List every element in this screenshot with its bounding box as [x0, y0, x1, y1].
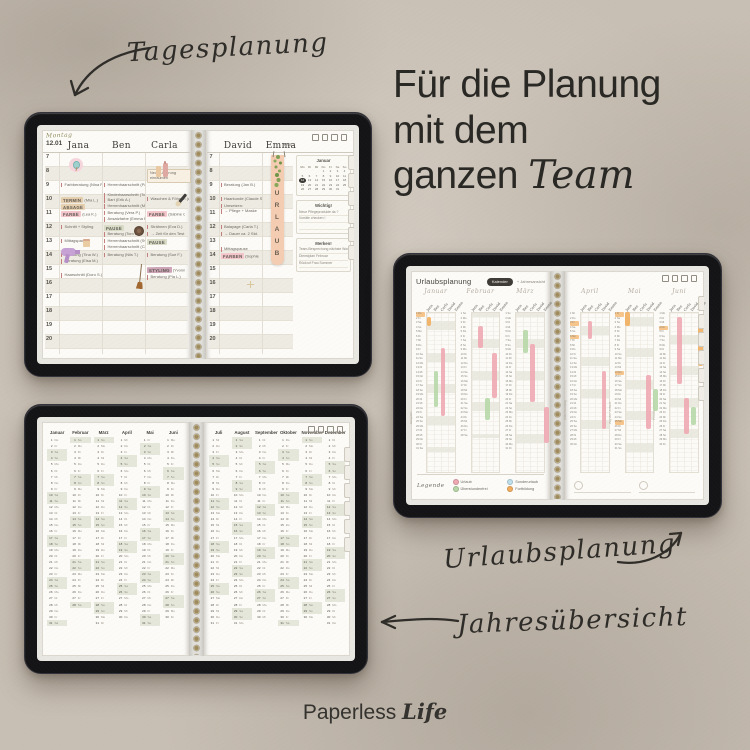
- page-tab[interactable]: [348, 173, 354, 188]
- page-tabs: [344, 447, 350, 552]
- vacation-bar: [523, 330, 528, 353]
- year-page-left: Januar1Do2Fr3Sa4So5Mo6Di7Mi8Do9Fr10Sa11S…: [42, 422, 189, 656]
- vacation-bar: [434, 371, 439, 407]
- tablet-year-overview: Januar1Do2Fr3Sa4So5Mo6Di7Mi8Do9Fr10Sa11S…: [24, 404, 368, 674]
- legend-color-dot: [453, 486, 459, 492]
- staff-name: Ben: [100, 141, 143, 151]
- planner-entry: Beratung (Vera P.): [104, 211, 146, 216]
- calendar-week-label: KW 2: [284, 142, 295, 147]
- year-overview-screen: Januar1Do2Fr3Sa4So5Mo6Di7Mi8Do9Fr10Sa11S…: [37, 417, 355, 661]
- vacation-bar: [691, 407, 696, 425]
- marketing-image: Tagesplanung Für die Planung mit dem gan…: [0, 0, 750, 750]
- vacation-bar: [485, 398, 490, 421]
- time-row: 18: [209, 307, 294, 321]
- vacation-planner-screen: Urlaubsplanung Kalender + Jahresansicht …: [406, 266, 709, 505]
- vacation-bar: [684, 398, 689, 434]
- planner-entry: Mittagspause: [61, 239, 103, 244]
- calendar-day: 31: [334, 187, 341, 192]
- year-day-row: 31Fr: [209, 620, 229, 626]
- year-day-row: 31Sa: [47, 620, 67, 626]
- planner-entry: FARBEN (Sophie T.): [221, 253, 259, 259]
- vacation-bar: [653, 389, 658, 412]
- vacation-bar: [677, 317, 682, 385]
- jahresansicht-link[interactable]: + Jahresansicht: [517, 279, 545, 284]
- time-row: 15: [209, 265, 294, 279]
- page-tab[interactable]: [344, 519, 350, 534]
- vacation-bar: [492, 353, 497, 398]
- planner-entry: Herrenhaarschnitt (Carl N.): [104, 245, 146, 250]
- vacation-bar: [478, 326, 483, 349]
- page-tab[interactable]: [344, 447, 350, 462]
- page-tab[interactable]: [344, 501, 350, 516]
- planner-entry: Herrenhaarschnitt (Max C.): [104, 204, 146, 209]
- vacation-month: FebruarJanaBenCarlaDavidEmma1 So 2 Mo 3 …: [461, 288, 501, 473]
- legend-color-dot: [507, 479, 513, 485]
- grid-icon[interactable]: [327, 426, 334, 433]
- calendar-day: 30: [327, 187, 334, 192]
- planner-entry: Herrenhaarschnitt (Sven O.): [104, 239, 146, 244]
- year-day-row: 31So: [140, 620, 160, 626]
- planner-entry: FARBE (Sabine C.): [147, 211, 185, 217]
- planner-entry: Haarkunde (Claude S.): [221, 197, 263, 202]
- page-tabs: [698, 296, 704, 401]
- year-month: Januar1Do2Fr3Sa4So5Mo6Di7Mi8Do9Fr10Sa11S…: [47, 429, 67, 649]
- year-month: Juli1Mi2Do3Fr4Sa5So6Mo7Di8Mi9Do10Fr11Sa1…: [209, 429, 229, 649]
- daily-planner-screen: Montag 12.01 JanaBenCarla 78910111213141…: [37, 125, 359, 364]
- legend-item: Urlaub: [453, 479, 490, 485]
- settings-icon[interactable]: [691, 275, 698, 282]
- staff-name: Carla: [143, 141, 186, 151]
- planner-entry: Farbberatung (Nina P.): [61, 183, 103, 188]
- planner-entry: Waschen & Föhnen (Anna B.): [147, 197, 189, 202]
- vacation-header: Urlaubsplanung Kalender + Jahresansicht: [412, 272, 549, 288]
- mini-calendar[interactable]: Januar MoDiMiDoFrSaSo1234567891011121314…: [296, 155, 351, 196]
- planner-entry: Beratung (Nils T.): [104, 253, 146, 258]
- label-jahresuebersicht: Jahresübersicht: [457, 602, 689, 640]
- planner-entry: Beratung (Elsa M.): [61, 259, 103, 264]
- year-day-row: 30Mo: [302, 614, 322, 620]
- year-month: September1Di2Mi3Do4Fr5Sa6So7Mo8Di9Mi10Do…: [255, 429, 275, 649]
- headline-line2: mit dem: [393, 108, 661, 154]
- page-title: Urlaubsplanung: [416, 277, 471, 286]
- time-grid-left: 7891011121314151617181920Farbberatung (N…: [45, 153, 188, 354]
- vacation-page-right: AprilJanaBenCarlaDavidEmmaOstermontag1 M…: [565, 271, 704, 500]
- vacation-bar: [602, 371, 607, 430]
- legend-item: Fortbildung: [507, 486, 544, 492]
- vacation-bar: [530, 344, 535, 403]
- hanging-plant-sticker-icon: [276, 155, 280, 159]
- time-row: 16: [209, 279, 294, 293]
- year-month: November1So2Mo3Di4Mi5Do6Fr7Sa8So9Mo10Di1…: [302, 429, 322, 649]
- sidebar: Januar MoDiMiDoFrSaSo1234567891011121314…: [296, 155, 351, 272]
- page-tab[interactable]: [698, 314, 704, 329]
- calendar-day: 26: [299, 187, 306, 192]
- time-row: 17: [45, 293, 188, 307]
- planner-entry: Beratung (Pia L.): [147, 275, 189, 280]
- page-tab[interactable]: [348, 245, 354, 260]
- settings-icon[interactable]: [337, 426, 344, 433]
- planner-entry: PAUSE: [104, 225, 142, 231]
- vacation-bar: [427, 317, 432, 326]
- arrow-to-year-overview: [372, 613, 460, 633]
- planner-entry: Neue Lieferung einräumen: [147, 169, 191, 183]
- undo-icon[interactable]: [662, 275, 669, 282]
- planner-entry: FARBE (Lea K.): [61, 211, 99, 217]
- year-months-left: Januar1Do2Fr3Sa4So5Mo6Di7Mi8Do9Fr10Sa11S…: [47, 429, 184, 649]
- planner-entry: Schnitt + Styling: [61, 225, 103, 230]
- bookmark-icon[interactable]: [318, 426, 325, 433]
- planner-entry: PAUSE: [147, 239, 185, 245]
- day-name: Montag: [46, 132, 73, 140]
- page-tab[interactable]: [348, 209, 354, 224]
- year-month: Oktober1Do2Fr3Sa4So5Mo6Di7Mi8Do9Fr10Sa11…: [278, 429, 298, 649]
- vacation-bar: [544, 407, 549, 443]
- year-month: Dezember1Di2Mi3Do4Fr5Sa6So7Mo8Di9Mi10Do1…: [325, 429, 345, 649]
- year-day-row: 30Di: [163, 614, 183, 620]
- vacation-months-left: JanuarJanaBenCarlaDavidEmmaNeujahr1 Do 2…: [416, 288, 545, 473]
- planner-entry: Umsetzen:: [221, 204, 263, 209]
- holiday-note: Tag der Arbeit: [608, 402, 612, 424]
- holiday-note: Neujahr: [409, 411, 413, 423]
- bookmark-icon[interactable]: [672, 275, 679, 282]
- time-row: 16: [45, 279, 188, 293]
- planner-entry: Haarschnitt (Doro S.): [61, 273, 103, 278]
- tablet-vacation-planner: Urlaubsplanung Kalender + Jahresansicht …: [393, 253, 722, 518]
- year-month: April1Mi2Do3Fr4Sa5So6Mo7Di8Mi9Do10Fr11Sa…: [117, 429, 137, 649]
- page-tab[interactable]: [344, 465, 350, 480]
- year-day-row: 31Do: [325, 620, 345, 626]
- page-tab[interactable]: [698, 386, 704, 401]
- planner-entry: Ansatzfarbe (Emma R.): [104, 217, 146, 222]
- calendar-day: 29: [320, 187, 327, 192]
- vacation-months-right: AprilJanaBenCarlaDavidEmmaOstermontag1 M…: [570, 288, 699, 473]
- page-tab[interactable]: [348, 155, 354, 170]
- daily-page-left: Montag 12.01 JanaBenCarla 78910111213141…: [42, 130, 191, 359]
- bookmark-icon[interactable]: [322, 134, 329, 141]
- page-tab[interactable]: [698, 332, 704, 347]
- headline: Für die Planung mit dem ganzen Team: [393, 62, 661, 199]
- page-tab[interactable]: [344, 483, 350, 498]
- page-tabs: [348, 155, 354, 260]
- year-day-row: 31Sa: [278, 620, 298, 626]
- planner-entry: Beratung (Tom B.): [104, 232, 146, 237]
- label-tagesplanung: Tagesplanung: [126, 28, 329, 69]
- calendar-day: 28: [313, 187, 320, 192]
- page-tab[interactable]: [348, 227, 354, 242]
- page-tab[interactable]: [698, 296, 704, 311]
- grid-icon[interactable]: [331, 134, 338, 141]
- vacation-month: JuniJanaBenCarlaDavidEmmaFronleichnam1 M…: [659, 288, 699, 473]
- planner-entry: → Pflege + Maske: [221, 209, 263, 214]
- year-month: Mai1Fr2Sa3So4Mo5Di6Mi7Do8Fr9Sa10So11Mo12…: [140, 429, 160, 649]
- year-month: Februar1So2Mo3Di4Mi5Do6Fr7Sa8So9Mo10Di11…: [70, 429, 90, 649]
- year-day-row: 30Do: [117, 614, 137, 620]
- page-toolbar: [312, 134, 347, 141]
- planner-entry: Herrenhaarschnitt (Paul F.): [104, 183, 146, 188]
- staff-name: Jana: [57, 141, 100, 151]
- planner-entry: Bart (Erik A.): [104, 198, 146, 203]
- planner-entry: Strähnen (Eva D.): [147, 225, 189, 230]
- vacation-month: MärzJanaBenCarlaDavidEmma1 So 2 Mo 3 Di …: [505, 288, 545, 473]
- arrow-to-vacation-planner: [612, 520, 694, 570]
- page-tab[interactable]: [344, 537, 350, 552]
- planner-entry: → Zeit für den Test: [147, 232, 189, 237]
- vacation-bar: [646, 375, 651, 429]
- brand-logo: Paperless Life: [0, 699, 750, 725]
- legend: Legende UrlaubÜberstundenfreiSonderurlau…: [417, 474, 544, 494]
- holiday-note: Ostermontag: [563, 400, 567, 420]
- year-month: Juni1Mo2Di3Mi4Do5Fr6Sa7So8Mo9Di10Mi11Do1…: [163, 429, 183, 649]
- settings-icon[interactable]: [341, 134, 348, 141]
- time-row: 20: [45, 335, 188, 349]
- planner-entry: STYLING (Yvonne S.): [147, 267, 185, 273]
- grid-icon[interactable]: [681, 275, 688, 282]
- planner-entry: TERMIN (Mia L.): [61, 197, 99, 203]
- staff-name: Emma: [260, 141, 303, 151]
- undo-icon[interactable]: [308, 426, 315, 433]
- spiral-binding: [550, 271, 565, 500]
- merken-note-box[interactable]: Merken!Team-Besprechung nächste WocheDie…: [296, 238, 351, 272]
- vacation-bar: [625, 312, 630, 326]
- year-month: August1Sa2So3Mo4Di5Mi6Do7Fr8Sa9So10Mo11D…: [232, 429, 252, 649]
- headline-line3: ganzen Team: [393, 153, 661, 199]
- planner-entry: Beratung (Sue F.): [147, 253, 189, 258]
- staff-name: David: [217, 141, 260, 151]
- time-row: 19: [209, 321, 294, 335]
- spiral-binding: [189, 422, 204, 656]
- vacation-bar: [441, 348, 446, 416]
- planner-entry: Beratung (Jan B.): [221, 183, 263, 188]
- wichtig-note-box[interactable]: Wichtig!Neue Pflegeprodukte da ?Vorräte …: [296, 200, 351, 234]
- undo-icon[interactable]: [312, 134, 319, 141]
- page-tab[interactable]: [348, 191, 354, 206]
- legend-item: Überstundenfrei: [453, 486, 490, 492]
- legend-title: Legende: [417, 483, 445, 489]
- planner-entry: Balayage (Carla T.): [221, 225, 263, 230]
- year-day-row: 28Sa: [70, 602, 90, 608]
- legend-color-dot: [507, 486, 513, 492]
- notes-area: [574, 479, 695, 493]
- urlaub-bookmark[interactable]: URLAUB: [271, 155, 284, 265]
- planner-entry: Beratung (Tina W.): [61, 253, 103, 258]
- calendar-day: 25: [341, 183, 348, 188]
- page-toolbar: [308, 426, 343, 433]
- vacation-month: JanuarJanaBenCarlaDavidEmmaNeujahr1 Do 2…: [416, 288, 456, 473]
- time-row: 18: [45, 307, 188, 321]
- year-page-right: Juli1Mi2Do3Fr4Sa5So6Mo7Di8Mi9Do10Fr11Sa1…: [204, 422, 351, 656]
- page-toolbar: [662, 275, 697, 282]
- year-day-row: 31Mo: [232, 620, 252, 626]
- time-row: 19: [45, 321, 188, 335]
- vacation-month: MaiJanaBenCarlaDavidEmmaTag der Arbeit1 …: [615, 288, 655, 473]
- legend-color-dot: [453, 479, 459, 485]
- year-months-right: Juli1Mi2Do3Fr4Sa5So6Mo7Di8Mi9Do10Fr11Sa1…: [209, 429, 346, 649]
- vacation-month: AprilJanaBenCarlaDavidEmmaOstermontag1 M…: [570, 288, 610, 473]
- calendar-day: 27: [306, 187, 313, 192]
- arrow-to-daily-planner: [58, 40, 153, 106]
- legend-item: Sonderurlaub: [507, 479, 544, 485]
- planner-entry: → Dauer ca. 2 Std.: [221, 232, 263, 237]
- kalender-button[interactable]: Kalender: [487, 278, 513, 286]
- headline-line1: Für die Planung: [393, 62, 661, 108]
- daily-header-left: Montag 12.01 JanaBenCarla: [43, 131, 190, 153]
- page-tab[interactable]: [698, 368, 704, 383]
- daily-page-right: DavidEmma KW 2 7891011121314151617181920…: [206, 130, 355, 359]
- vacation-bar: [588, 321, 593, 339]
- vacation-page-left: Urlaubsplanung Kalender + Jahresansicht …: [411, 271, 550, 500]
- time-row: 17: [209, 293, 294, 307]
- time-row: 7: [45, 153, 188, 167]
- staff-names-left: JanaBenCarla: [57, 141, 190, 151]
- year-month: März1So2Mo3Di4Mi5Do6Fr7Sa8So9Mo10Di11Mi1…: [94, 429, 114, 649]
- year-day-row: 30Mi: [255, 614, 275, 620]
- time-row: 20: [209, 335, 294, 349]
- spiral-binding: [191, 130, 206, 359]
- planner-entry: Mittagspause: [221, 247, 263, 252]
- tablet-daily-planner: Montag 12.01 JanaBenCarla 78910111213141…: [24, 112, 372, 377]
- year-day-row: 31Di: [94, 620, 114, 626]
- page-tab[interactable]: [698, 350, 704, 365]
